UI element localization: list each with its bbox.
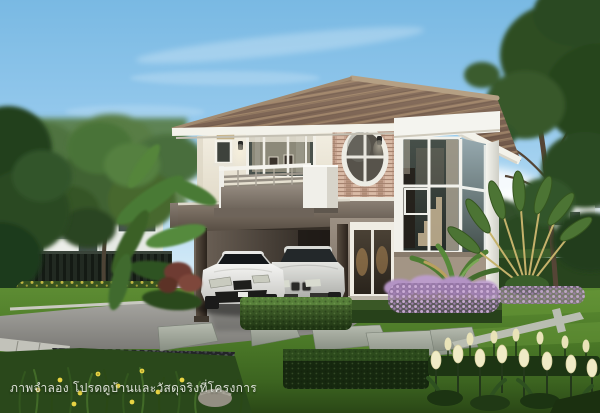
- front-hedge: [240, 297, 352, 330]
- scene-graphics: [0, 0, 600, 413]
- balcony-end-box: [303, 165, 338, 213]
- watermark-text: ภาพจำลอง โปรดดูบ้านและวัสดุจริงที่โครงกา…: [10, 379, 257, 398]
- rendered-photo: ภาพจำลอง โปรดดูบ้านและวัสดุจริงที่โครงกา…: [0, 0, 600, 413]
- hedge-mid-block: [283, 349, 429, 389]
